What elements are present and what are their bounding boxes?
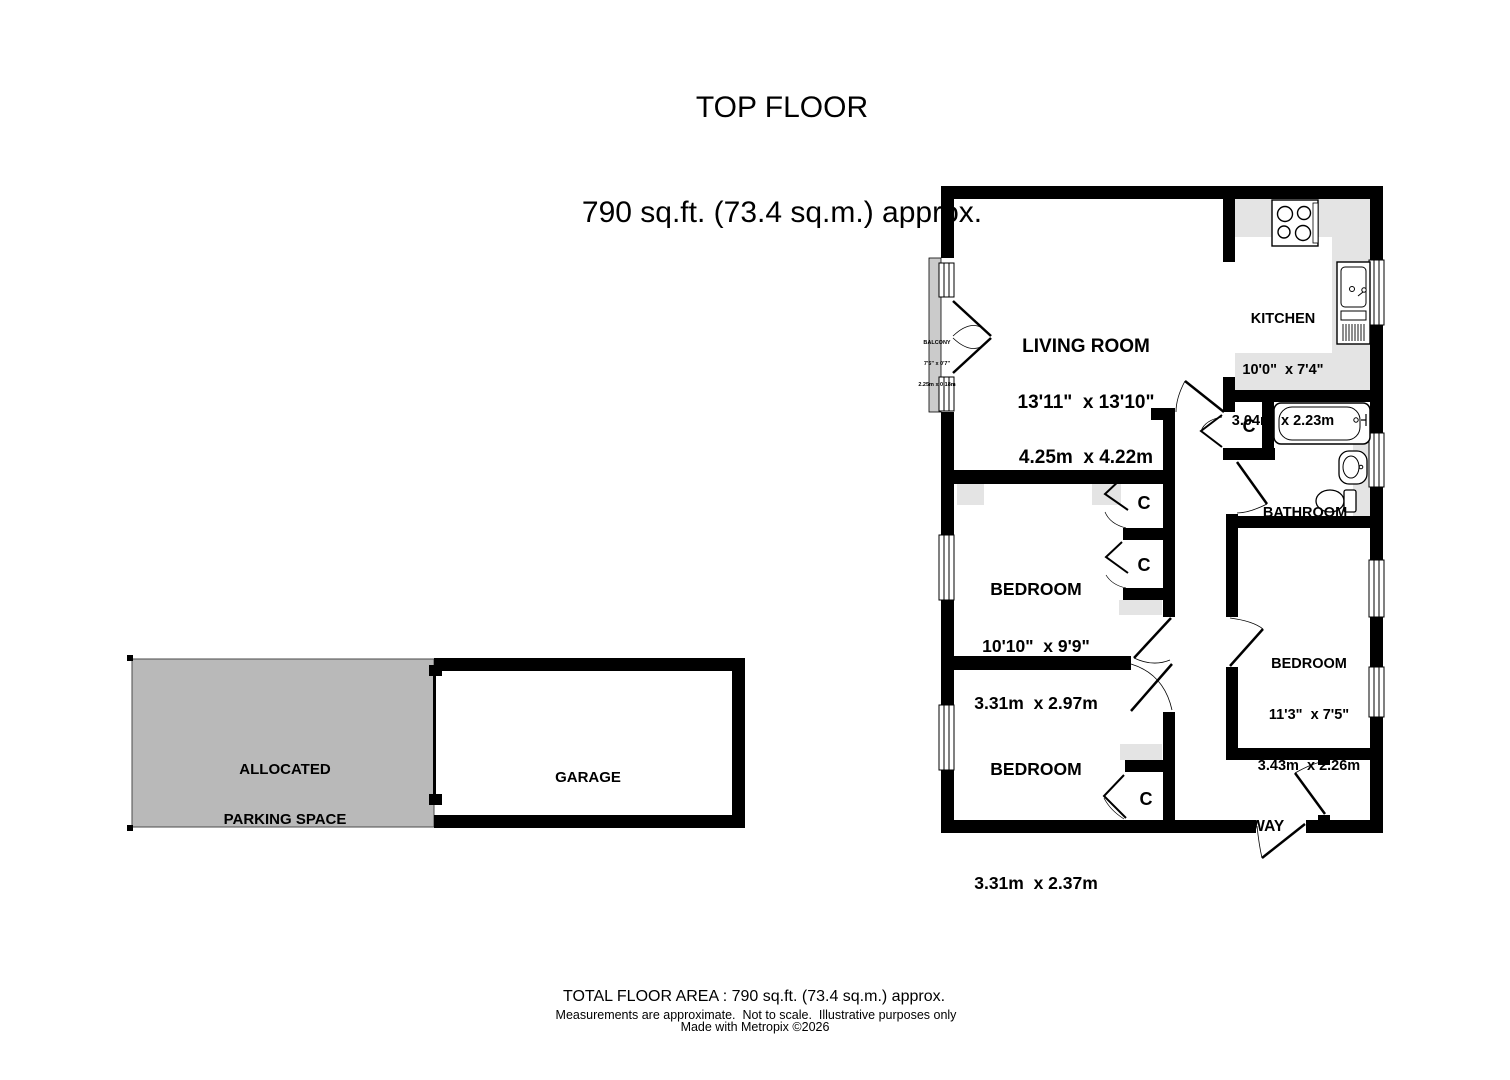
window [1369, 667, 1384, 717]
balcony-doors [953, 301, 991, 373]
room-size-imperial: 7'5" x 0'7" [918, 361, 955, 368]
window [939, 535, 954, 600]
store-label: STORE [1317, 783, 1370, 870]
room-name: GARAGE [555, 770, 621, 787]
closet-label: C [1138, 555, 1151, 575]
door-swing [1134, 618, 1171, 663]
room-size-metric: 3.31m x 2.37m [974, 874, 1098, 893]
room-name: BEDROOM [974, 580, 1098, 599]
footer-credit: Made with Metropix ©2026 [681, 1020, 830, 1034]
room-size-imperial: 13'11" x 13'10" [1018, 394, 1155, 413]
parking-line1: ALLOCATED [224, 762, 347, 779]
room-size-imperial: 10'10" x 9'9" [974, 637, 1098, 656]
room-name: BEDROOM [1258, 656, 1360, 673]
closet-label: C [1140, 789, 1153, 809]
title-line2: 790 sq.ft. (73.4 sq.m.) approx. [582, 195, 982, 230]
room-name: BEDROOM [974, 760, 1098, 779]
window [1369, 433, 1384, 487]
balcony-label: BALCONY 7'5" x 0'7" 2.25m x 0.18m [918, 326, 955, 403]
garage-door-line [433, 676, 436, 794]
bathroom-label: BATHROOM [1263, 471, 1347, 556]
room-size-metric: 4.25m x 4.22m [1018, 449, 1155, 468]
room-name: BALCONY [918, 340, 955, 347]
living-room-label: LIVING ROOM 13'11" x 13'10" 4.25m x 4.22… [1018, 301, 1155, 505]
parking-corner-dot [127, 825, 133, 831]
bedroom-right-label: BEDROOM 11'3" x 7'5" 3.43m x 2.26m [1258, 622, 1360, 809]
hallway-label: HALLWAY [1210, 783, 1284, 870]
parking-line2: PARKING SPACE [224, 812, 347, 829]
closet-label: C [1243, 416, 1256, 436]
room-size-metric: 2.25m x 0.18m [918, 382, 955, 389]
window [939, 705, 954, 770]
room-name: HALLWAY [1210, 818, 1284, 835]
closet3-patch [1120, 744, 1162, 760]
door-swing [1131, 664, 1172, 711]
kitchen-sink-icon [1337, 262, 1370, 344]
window [1369, 560, 1384, 617]
room-size-metric: 3.43m x 2.26m [1258, 758, 1360, 775]
bifold-door [1201, 415, 1222, 447]
door-swing [1176, 381, 1224, 412]
floorplan-page: TOP FLOOR 790 sq.ft. (73.4 sq.m.) approx… [0, 0, 1510, 1080]
parking-corner-dot [127, 655, 133, 661]
closet2-patch [1119, 600, 1162, 615]
room-size-imperial: 10'10" x 7'9" [974, 817, 1098, 836]
room-size-imperial: 11'3" x 7'5" [1258, 707, 1360, 724]
bedroom-bottom-label: BEDROOM 10'10" x 7'9" 3.31m x 2.37m [974, 722, 1098, 931]
room-name: STORE [1317, 818, 1370, 835]
room-size-metric: 3.31m x 2.97m [974, 694, 1098, 713]
room-name: KITCHEN [1232, 311, 1334, 328]
hob-icon [1272, 200, 1318, 246]
page-title: TOP FLOOR 790 sq.ft. (73.4 sq.m.) approx… [582, 20, 982, 300]
bifold-door [1104, 775, 1126, 819]
bedroom-middle-label: BEDROOM 10'10" x 9'9" 3.31m x 2.97m [974, 542, 1098, 751]
room-name: BATHROOM [1263, 505, 1347, 522]
room-name: LIVING ROOM [1018, 338, 1155, 357]
closet-label: C [1138, 493, 1151, 513]
window [1369, 260, 1384, 325]
garage-label: GARAGE [555, 737, 621, 820]
title-line1: TOP FLOOR [582, 90, 982, 125]
room-size-imperial: 10'0" x 7'4" [1232, 362, 1334, 379]
total-floor-area: TOTAL FLOOR AREA : 790 sq.ft. (73.4 sq.m… [563, 988, 945, 1006]
parking-label: ALLOCATED PARKING SPACE [224, 729, 347, 861]
bifold-door [1106, 542, 1128, 588]
